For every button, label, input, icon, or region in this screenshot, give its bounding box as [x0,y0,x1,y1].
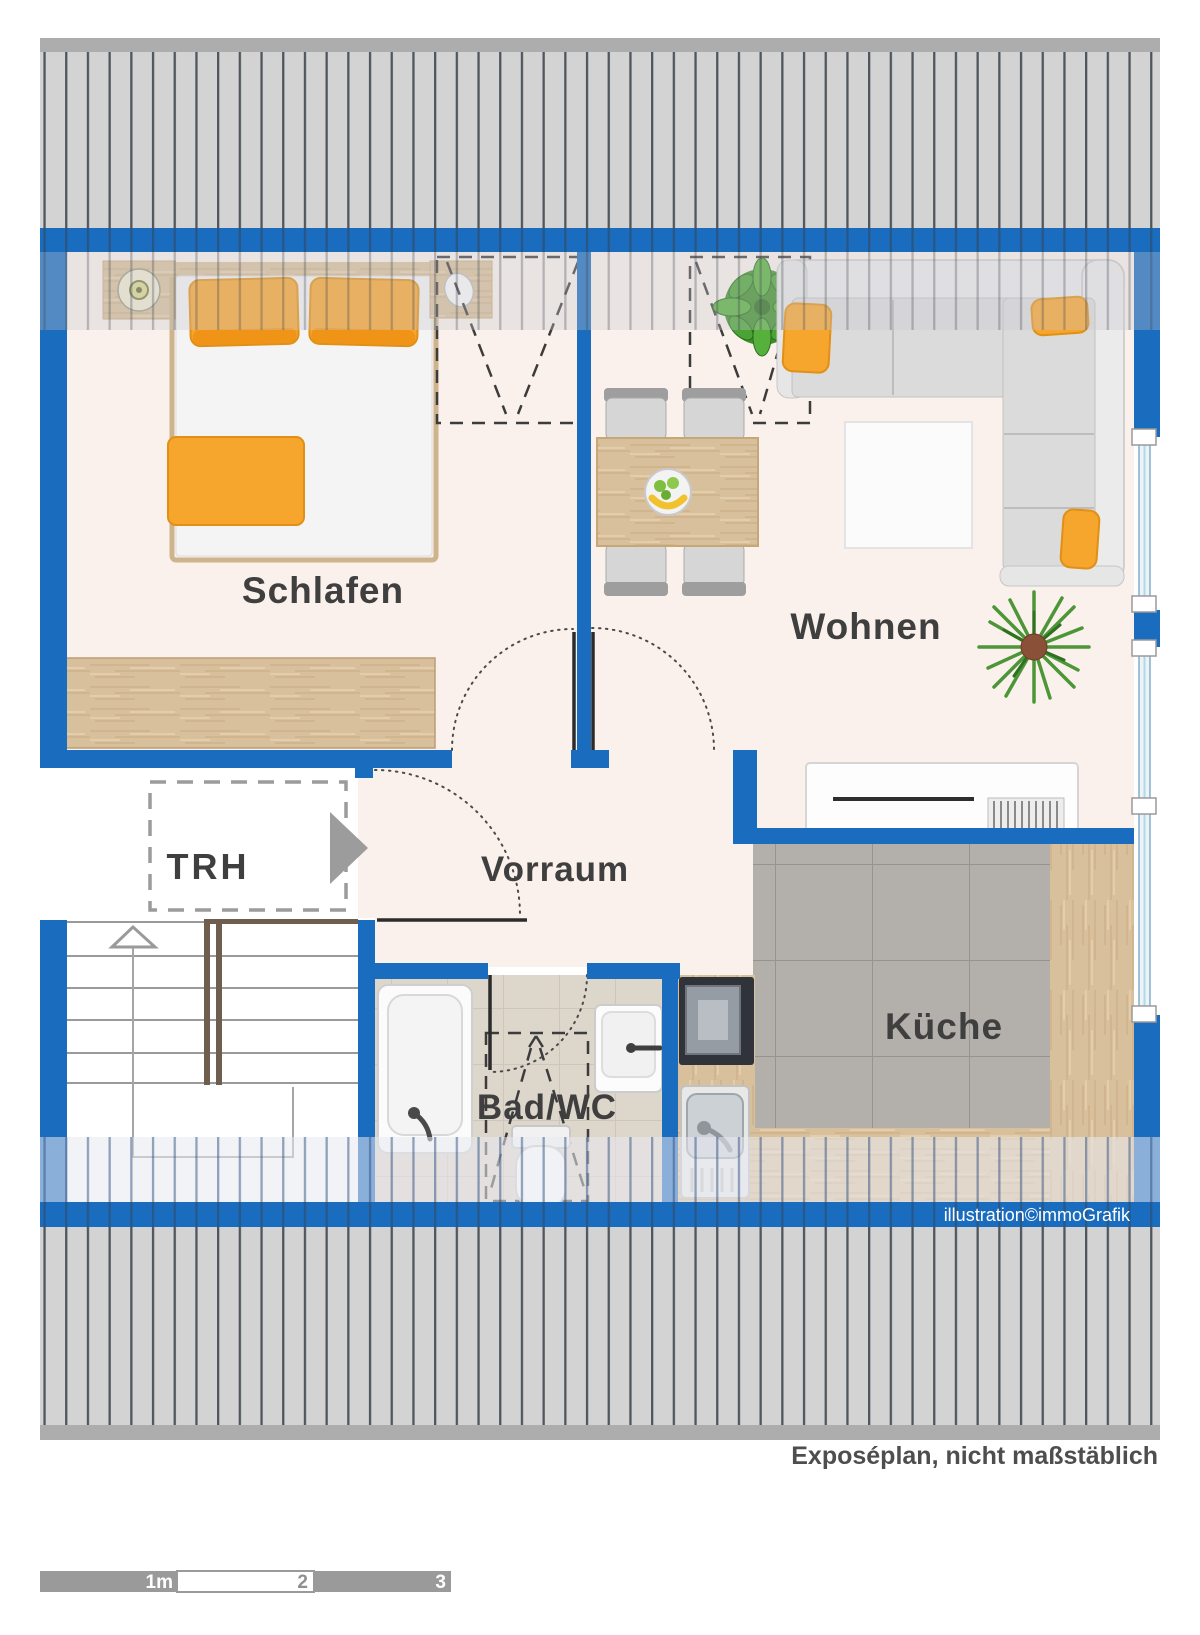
rug [845,422,972,548]
footer-note: Exposéplan, nicht maßstäblich [791,1442,1158,1470]
wall-bad-top-left [373,963,488,979]
tv-sideboard [806,763,1078,836]
blanket [168,437,304,525]
sofa-pillow [1060,509,1100,569]
label-wohnen: Wohnen [790,606,941,647]
scale-label-2: 2 [297,1572,308,1593]
wall-schlafen-bottom [40,750,452,768]
sideboard [65,658,435,748]
scale-label-3: 3 [435,1572,446,1593]
stair-stringer [204,922,210,1085]
chair [682,388,746,440]
bathtub [378,985,472,1153]
floorplan-page: Schlafen Wohnen Vorraum Küche Bad/WC TRH… [0,0,1200,1635]
wall-kueche-top [745,828,1134,844]
yucca-plant-icon [979,592,1089,702]
label-bad-wc: Bad/WC [477,1088,617,1127]
scale-seg-2 [177,1571,314,1592]
watermark-text: illustration©immoGrafik [944,1205,1131,1225]
label-vorraum: Vorraum [481,850,629,889]
radiator-icon [988,798,1064,833]
roof-band-top [40,38,1160,330]
floorplan-svg: Schlafen Wohnen Vorraum Küche Bad/WC TRH… [0,0,1200,1635]
scale-bar: 1m 2 3 [40,1571,451,1593]
label-schlafen: Schlafen [242,570,404,611]
floor-kueche-tiles [753,844,1050,1130]
chair [682,544,746,596]
roof-cap-top [40,38,1160,52]
windows-right [1132,429,1156,1022]
scale-seg-3 [314,1571,451,1592]
chair [604,388,668,440]
scale-label-1m: 1m [146,1572,173,1593]
label-kueche: Küche [885,1006,1003,1047]
fruit-bowl-icon [645,469,691,515]
stair-landing-edge [204,919,358,924]
label-trh: TRH [167,846,250,887]
roof-cap-bottom [40,1425,1160,1440]
floor-kueche-entry [662,830,757,978]
chair [604,544,668,596]
washbasin [595,1005,662,1092]
roof-band-bottom [40,1137,1160,1440]
stove [679,977,754,1065]
